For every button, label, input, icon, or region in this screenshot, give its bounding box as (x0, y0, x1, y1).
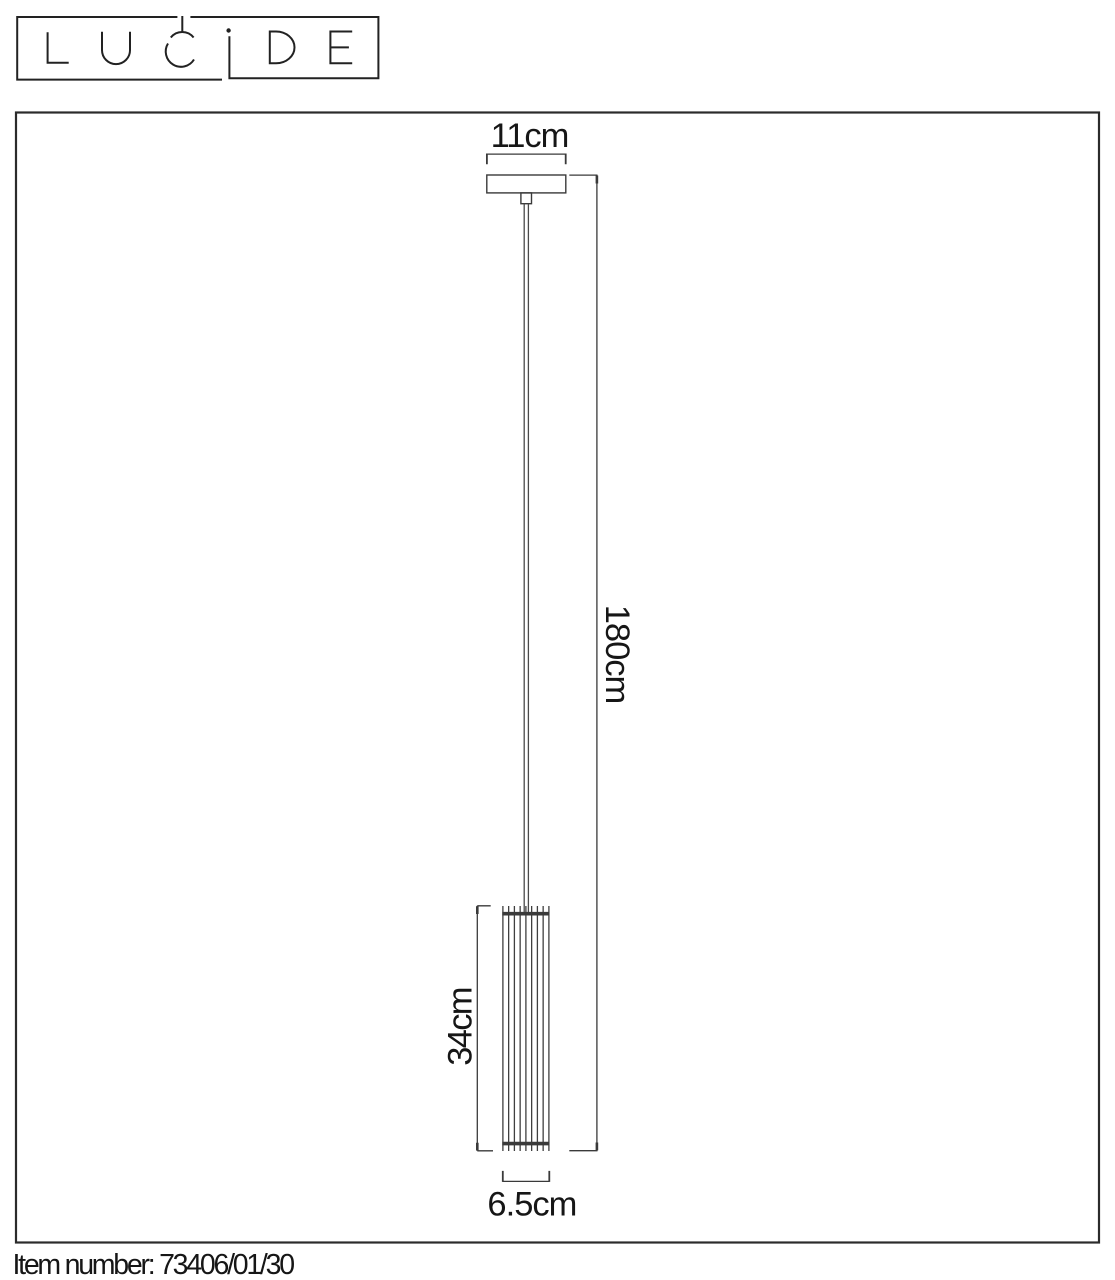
svg-text:180cm: 180cm (598, 605, 636, 704)
svg-text:Item number: 73406/01/30: Item number: 73406/01/30 (13, 1249, 295, 1280)
svg-text:11cm: 11cm (491, 117, 569, 155)
svg-text:34cm: 34cm (442, 988, 480, 1066)
svg-text:6.5cm: 6.5cm (487, 1185, 576, 1223)
